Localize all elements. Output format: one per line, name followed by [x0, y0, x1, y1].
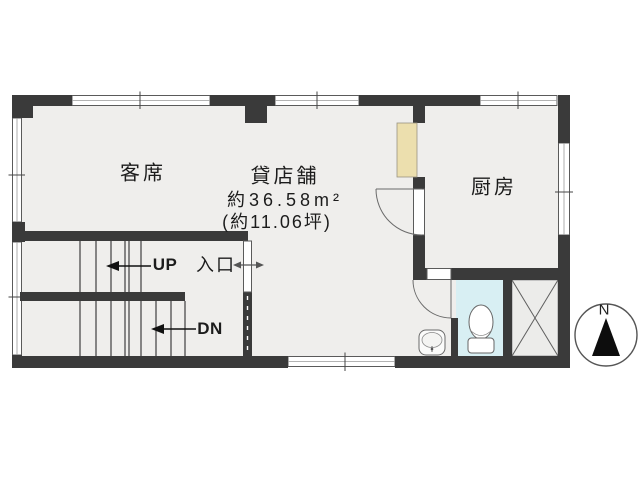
toilet-icon	[468, 305, 494, 353]
wall-segment	[20, 292, 185, 301]
stairs-down-label: DN	[197, 319, 223, 339]
wall-segment	[245, 105, 267, 123]
wall-segment	[12, 95, 72, 106]
kitchen-door-opening	[414, 189, 425, 235]
stairs-up-label: UP	[153, 255, 178, 275]
room-label-guest-seating: 客席	[120, 157, 166, 186]
entrance-label: 入口	[196, 251, 236, 277]
rental-shop-area-tsubo: (約11.06坪)	[222, 208, 332, 234]
wall-segment	[558, 235, 570, 368]
floor-plan-drawing	[0, 0, 640, 480]
room-label-kitchen: 厨房	[471, 171, 517, 200]
kitchen-counter	[397, 123, 417, 177]
room-label-rental-shop: 貸店舗	[251, 160, 320, 189]
washbasin-icon	[419, 330, 445, 355]
wall-segment	[12, 356, 288, 368]
entrance-opening	[244, 241, 252, 292]
wall-segment	[451, 318, 458, 356]
wall-segment	[503, 280, 512, 356]
wall-segment	[12, 231, 248, 241]
wall-segment	[395, 356, 570, 368]
wall-segment	[413, 268, 427, 280]
wall-segment	[451, 268, 570, 280]
wall-segment	[413, 177, 425, 189]
wall-segment	[210, 95, 275, 106]
wall-segment	[558, 95, 570, 143]
wall-segment	[359, 95, 480, 106]
toilet-door-opening	[427, 269, 451, 280]
compass-north-label: N	[599, 302, 610, 319]
floor-plan-canvas: 客席 貸店舗 約36.58m² (約11.06坪) 厨房 UP DN 入口 N	[0, 0, 640, 480]
wall-segment	[413, 105, 425, 123]
